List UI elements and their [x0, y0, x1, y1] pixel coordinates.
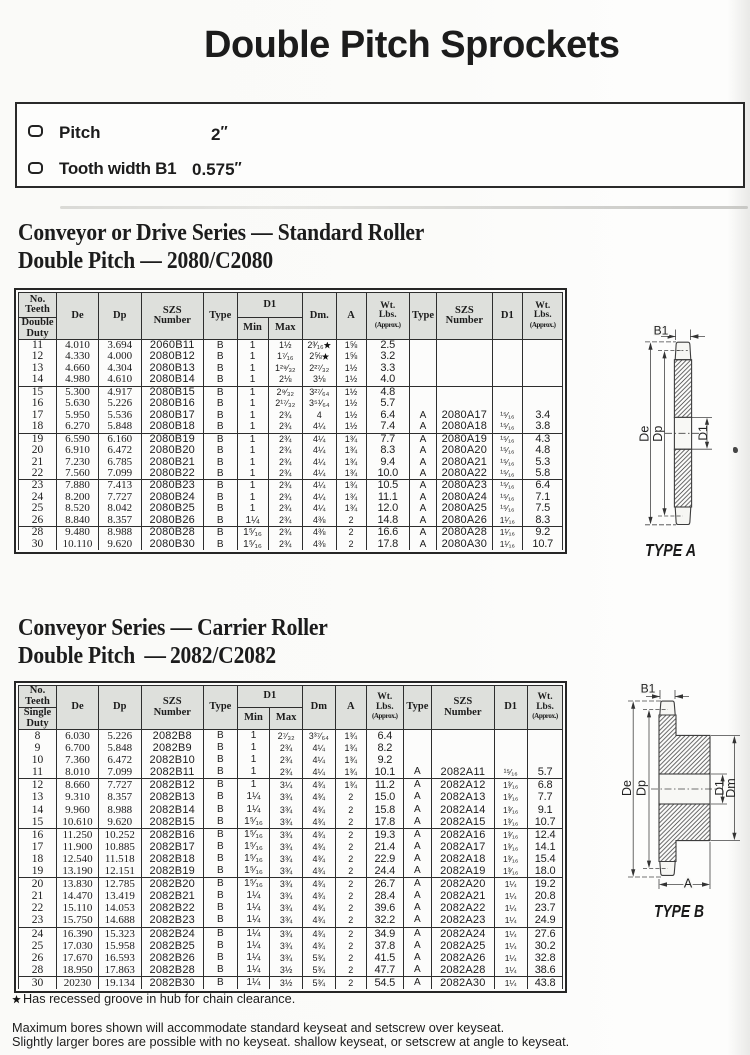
svg-text:TYPE A: TYPE A: [645, 540, 696, 560]
svg-text:Dp: Dp: [651, 426, 665, 442]
svg-text:Dp: Dp: [635, 780, 649, 796]
svg-text:B1: B1: [641, 682, 656, 696]
svg-text:B1: B1: [654, 324, 669, 338]
svg-text:De: De: [638, 426, 652, 442]
svg-text:D1: D1: [696, 425, 710, 441]
svg-text:TYPE B: TYPE B: [654, 901, 704, 921]
svg-text:A: A: [684, 877, 693, 891]
svg-text:Dm: Dm: [724, 778, 738, 797]
svg-text:De: De: [620, 780, 634, 796]
